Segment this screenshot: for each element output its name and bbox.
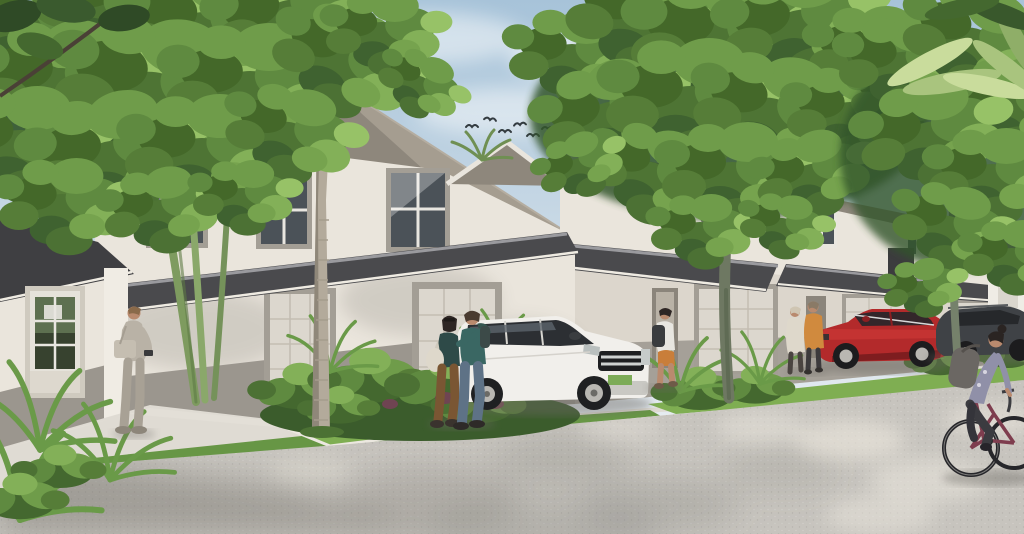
garage-door <box>694 284 778 374</box>
red-car-wheel <box>909 341 935 367</box>
red-car-wheel <box>833 343 859 369</box>
suv-license-plate <box>608 375 632 385</box>
entry-door <box>25 286 85 398</box>
suv-wheel <box>577 376 611 410</box>
suv-grille <box>598 351 644 371</box>
upstairs-window <box>386 168 450 252</box>
scene-canvas <box>0 0 1024 534</box>
scene-architectural-rendering <box>0 0 1024 534</box>
